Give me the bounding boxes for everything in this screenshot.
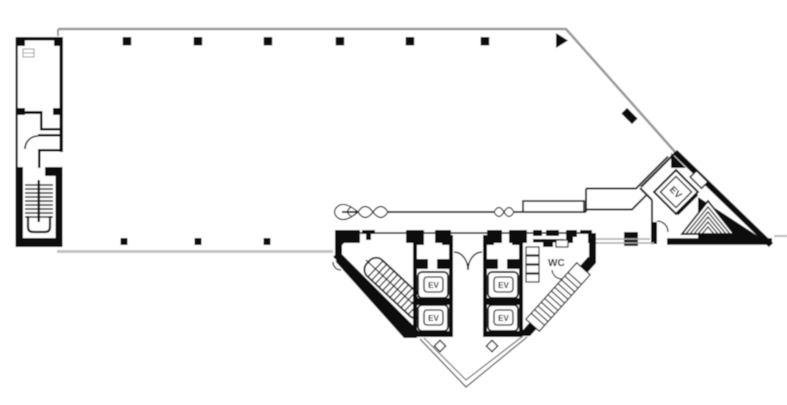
- svg-text:EV: EV: [498, 314, 509, 323]
- svg-text:WC: WC: [548, 258, 565, 269]
- svg-text:EV: EV: [498, 281, 509, 290]
- svg-text:EV: EV: [428, 281, 439, 290]
- svg-text:EV: EV: [428, 314, 439, 323]
